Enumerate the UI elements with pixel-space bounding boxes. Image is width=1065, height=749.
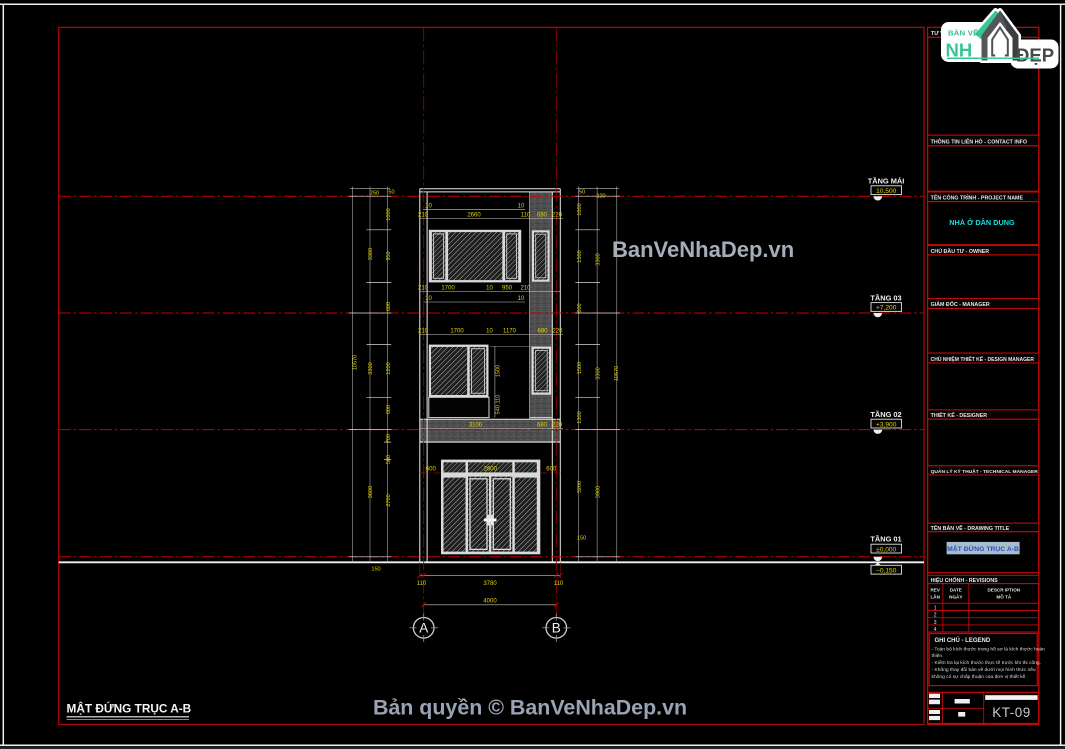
svg-text:BẢN VẼ: BẢN VẼ: [948, 29, 979, 38]
svg-text:2600: 2600: [484, 466, 498, 472]
svg-text:1: 1: [934, 605, 937, 611]
svg-text:1500: 1500: [495, 365, 501, 377]
svg-text:CHỦ NHIỆM THIẾT KẾ - DESIGN MA: CHỦ NHIỆM THIẾT KẾ - DESIGN MANAGER: [931, 355, 1035, 363]
svg-text:10: 10: [425, 204, 432, 210]
svg-text:950: 950: [386, 251, 392, 260]
svg-text:NHÀ Ở DÂN DỤNG: NHÀ Ở DÂN DỤNG: [949, 218, 1015, 227]
svg-text:4000: 4000: [483, 599, 497, 605]
svg-text:QUẢN LÝ KỲ THUẬT - TECHNICAL M: QUẢN LÝ KỲ THUẬT - TECHNICAL MANAGER: [931, 468, 1039, 475]
svg-text:3200: 3200: [577, 481, 583, 493]
svg-text:GHI CHÚ - LEGEND: GHI CHÚ - LEGEND: [935, 637, 991, 644]
svg-text:THIẾT KẾ - DESIGNER: THIẾT KẾ - DESIGNER: [931, 412, 988, 419]
svg-text:220: 220: [596, 194, 605, 200]
svg-text:10: 10: [486, 328, 493, 334]
svg-text:1500: 1500: [577, 250, 583, 262]
svg-text:10570: 10570: [353, 355, 359, 371]
svg-text:MÔ TẢ: MÔ TẢ: [996, 593, 1011, 600]
svg-text:10: 10: [486, 286, 493, 292]
svg-text:REV: REV: [930, 588, 940, 593]
svg-text:10,500: 10,500: [876, 188, 897, 195]
svg-text:210: 210: [418, 213, 429, 219]
svg-text:210: 210: [418, 328, 429, 334]
svg-text:210: 210: [520, 286, 531, 292]
svg-text:500: 500: [386, 455, 392, 464]
svg-text:- Kiểm tra lại kích thước thực: - Kiểm tra lại kích thước thực tế trước …: [932, 659, 1041, 666]
svg-text:KT-09: KT-09: [992, 705, 1031, 720]
svg-text:thiện.: thiện.: [932, 653, 944, 659]
svg-text:3300: 3300: [368, 248, 374, 260]
svg-text:ĐẸP: ĐẸP: [1016, 45, 1054, 66]
svg-text:NH: NH: [946, 40, 973, 61]
svg-text:950: 950: [502, 286, 513, 292]
svg-text:10: 10: [425, 296, 432, 302]
svg-text:GIÁM ĐỐC - MANAGER: GIÁM ĐỐC - MANAGER: [931, 301, 990, 308]
svg-text:MẬT ĐỨNG TRỤC A-B: MẬT ĐỨNG TRỤC A-B: [947, 544, 1019, 553]
svg-text:2660: 2660: [467, 213, 481, 219]
svg-text:110: 110: [417, 581, 427, 587]
svg-text:Bản quyền © BanVeNhaDep.vn: Bản quyền © BanVeNhaDep.vn: [373, 696, 687, 720]
svg-text:TẦNG 01: TẦNG 01: [870, 534, 901, 544]
svg-text:3900: 3900: [596, 486, 602, 498]
svg-text:50: 50: [579, 190, 585, 196]
svg-text:10: 10: [518, 296, 525, 302]
svg-text:680: 680: [537, 213, 548, 219]
svg-text:10570: 10570: [614, 366, 620, 382]
svg-text:1700: 1700: [441, 286, 455, 292]
svg-text:600: 600: [386, 405, 392, 414]
svg-text:250: 250: [370, 191, 379, 197]
svg-text:THÔNG TIN LIÊN HỎ - CONTACT IN: THÔNG TIN LIÊN HỎ - CONTACT INFO: [931, 138, 1027, 146]
svg-text:CHỦ ĐẦU TƯ - OWNER: CHỦ ĐẦU TƯ - OWNER: [931, 248, 990, 255]
svg-text:1000: 1000: [386, 208, 392, 220]
svg-text:1300: 1300: [577, 411, 583, 423]
svg-text:700: 700: [386, 434, 392, 443]
svg-text:±0,000: ±0,000: [876, 546, 896, 553]
svg-text:110: 110: [521, 213, 531, 219]
svg-text:TẦNG MÁI: TẦNG MÁI: [868, 176, 905, 186]
svg-text:220: 220: [552, 328, 563, 334]
svg-text:TẦNG 02: TẦNG 02: [870, 409, 901, 419]
svg-text:BanVeNhaDep.vn: BanVeNhaDep.vn: [612, 237, 794, 262]
svg-text:50: 50: [388, 190, 394, 196]
svg-text:3300: 3300: [596, 367, 602, 379]
svg-text:A: A: [419, 621, 428, 636]
svg-text:B: B: [552, 621, 561, 636]
svg-text:3780: 3780: [483, 581, 497, 587]
svg-text:110: 110: [554, 581, 564, 587]
svg-text:HIỆU CHỐNH - REVISIONS: HIỆU CHỐNH - REVISIONS: [931, 576, 999, 584]
svg-text:540 110: 540 110: [495, 395, 501, 415]
svg-text:150: 150: [371, 567, 380, 573]
svg-text:TẦNG 03: TẦNG 03: [870, 292, 901, 302]
svg-text:LẦN: LẦN: [930, 594, 940, 600]
svg-text:220: 220: [552, 423, 563, 429]
svg-text:NGÀY: NGÀY: [949, 594, 962, 600]
svg-text:2: 2: [934, 613, 937, 619]
svg-text:+7,200: +7,200: [876, 305, 897, 312]
svg-text:−0,150: −0,150: [876, 567, 897, 574]
svg-text:600: 600: [386, 302, 392, 311]
svg-text:TÊN BẢN VẼ - DRAWING TITLE: TÊN BẢN VẼ - DRAWING TITLE: [931, 524, 1010, 532]
svg-text:220: 220: [552, 213, 563, 219]
svg-text:1000: 1000: [577, 203, 583, 215]
svg-text:+3,900: +3,900: [876, 421, 897, 428]
svg-text:3: 3: [934, 620, 937, 626]
svg-text:1170: 1170: [503, 328, 517, 334]
svg-text:DESCR IPTION: DESCR IPTION: [987, 588, 1020, 593]
svg-text:DATE: DATE: [950, 588, 962, 593]
svg-text:- Không thay đổi bản vẽ dưới m: - Không thay đổi bản vẽ dưới mọi hình th…: [932, 666, 1036, 673]
svg-text:4: 4: [934, 627, 937, 633]
svg-text:3300: 3300: [368, 362, 374, 374]
svg-text:600: 600: [426, 466, 437, 472]
svg-text:3600: 3600: [368, 486, 374, 498]
svg-text:3100: 3100: [469, 423, 483, 429]
svg-text:150: 150: [577, 536, 586, 542]
svg-text:TÊN CÔNG TRÌNH - PROJECT NAME: TÊN CÔNG TRÌNH - PROJECT NAME: [931, 193, 1024, 201]
svg-text:1500: 1500: [577, 362, 583, 374]
svg-text:600: 600: [546, 466, 557, 472]
svg-text:10: 10: [518, 204, 525, 210]
svg-text:1700: 1700: [450, 328, 464, 334]
svg-text:680: 680: [537, 423, 548, 429]
svg-text:MẬT ĐỨNG TRỤC A-B: MẬT ĐỨNG TRỤC A-B: [67, 702, 192, 716]
svg-text:3300: 3300: [596, 253, 602, 265]
svg-text:- Toàn bộ kích thước trong hồ: - Toàn bộ kích thước trong hồ sơ là kích…: [932, 646, 1046, 652]
svg-text:210: 210: [418, 286, 429, 292]
svg-text:không có sự chấp thuận của đơn: không có sự chấp thuận của đơn vị thiết …: [932, 673, 1027, 680]
svg-text:2700: 2700: [386, 494, 392, 506]
svg-text:680: 680: [537, 328, 548, 334]
svg-text:600: 600: [577, 303, 583, 312]
svg-text:1200: 1200: [386, 362, 392, 374]
